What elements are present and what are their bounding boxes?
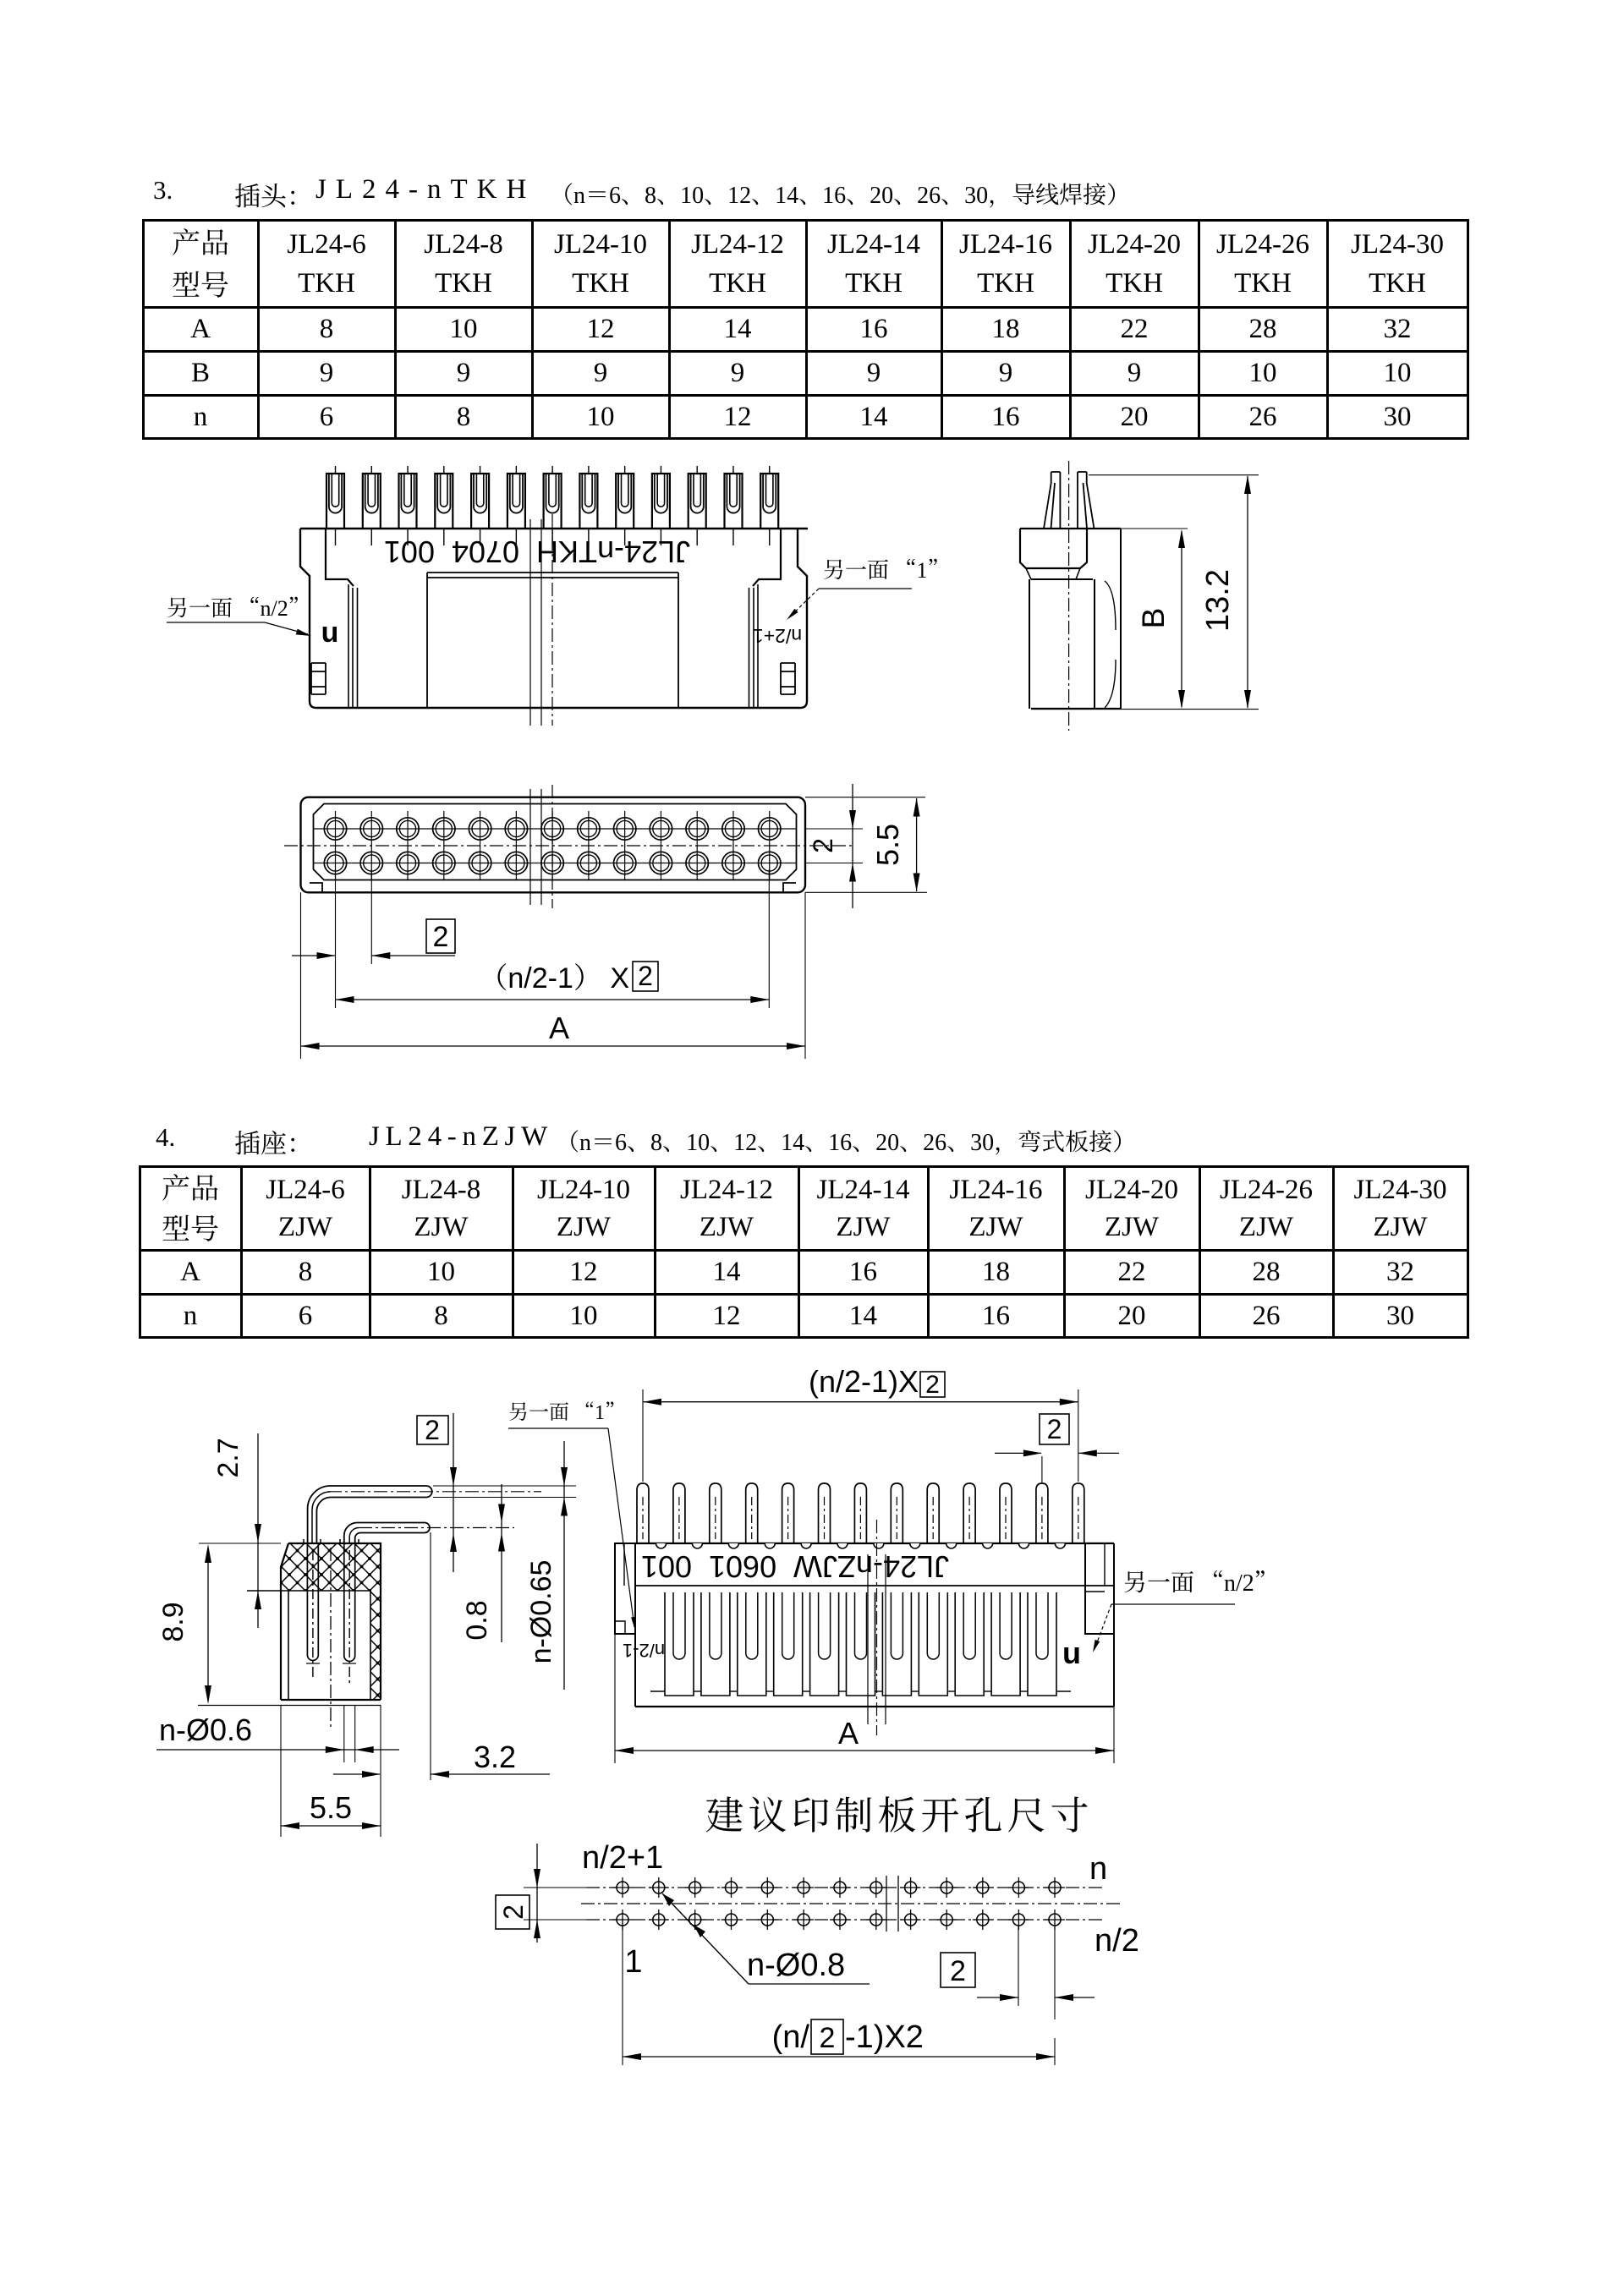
svg-text:2.7: 2.7: [212, 1438, 244, 1477]
svg-text:n: n: [321, 620, 339, 652]
svg-text:另一面 “n/2”: 另一面 “n/2”: [167, 591, 310, 622]
svg-text:2: 2: [820, 2022, 836, 2054]
svg-text:另一面 “1”: 另一面 “1”: [823, 553, 950, 584]
svg-text:n-Ø0.65: n-Ø0.65: [525, 1560, 557, 1664]
svg-text:3.2: 3.2: [474, 1740, 516, 1774]
svg-text:2: 2: [433, 921, 449, 953]
svg-text:n/2: n/2: [1095, 1923, 1139, 1959]
svg-text:2: 2: [808, 838, 838, 853]
svg-text:另一面 “n/2”: 另一面 “n/2”: [1123, 1564, 1278, 1598]
svg-text:(n/2-1)X: (n/2-1)X: [809, 1364, 919, 1399]
svg-text:JL24-nZJW 0601 001: JL24-nZJW 0601 001: [641, 1549, 949, 1584]
svg-text:2: 2: [638, 961, 653, 991]
svg-text:建议印制板开孔尺寸: 建议印制板开孔尺寸: [705, 1785, 1094, 1841]
svg-text:n/2-1: n/2-1: [623, 1640, 665, 1661]
svg-text:(n/: (n/: [772, 2019, 810, 2055]
svg-text:n/2+1: n/2+1: [753, 625, 802, 647]
svg-text:-1)X2: -1)X2: [845, 2019, 924, 2055]
svg-text:另一面 “1”: 另一面 “1”: [508, 1395, 625, 1425]
svg-text:13.2: 13.2: [1200, 569, 1236, 632]
svg-text:n/2+1: n/2+1: [582, 1840, 663, 1876]
svg-text:A: A: [549, 1011, 569, 1045]
svg-text:2: 2: [498, 1904, 529, 1920]
svg-text:5.5: 5.5: [870, 824, 905, 866]
svg-text:A: A: [838, 1716, 859, 1751]
svg-text:n-Ø0.6: n-Ø0.6: [159, 1712, 252, 1747]
svg-text:n: n: [1062, 1641, 1081, 1675]
svg-text:0.8: 0.8: [461, 1600, 493, 1640]
svg-text:B: B: [1136, 608, 1171, 629]
svg-text:2: 2: [925, 1371, 940, 1399]
svg-text:8.9: 8.9: [157, 1602, 189, 1641]
svg-text:2: 2: [950, 1955, 966, 1987]
svg-text:2: 2: [1047, 1414, 1062, 1444]
svg-text:2: 2: [425, 1415, 440, 1445]
svg-text:n: n: [1089, 1851, 1107, 1887]
svg-text:JL24-nTKH 0704 001: JL24-nTKH 0704 001: [384, 534, 690, 569]
svg-text:1: 1: [624, 1944, 642, 1980]
svg-text:n-Ø0.8: n-Ø0.8: [747, 1948, 845, 1983]
svg-text:5.5: 5.5: [310, 1790, 352, 1825]
svg-text:（n/2-1） X: （n/2-1） X: [479, 955, 629, 996]
